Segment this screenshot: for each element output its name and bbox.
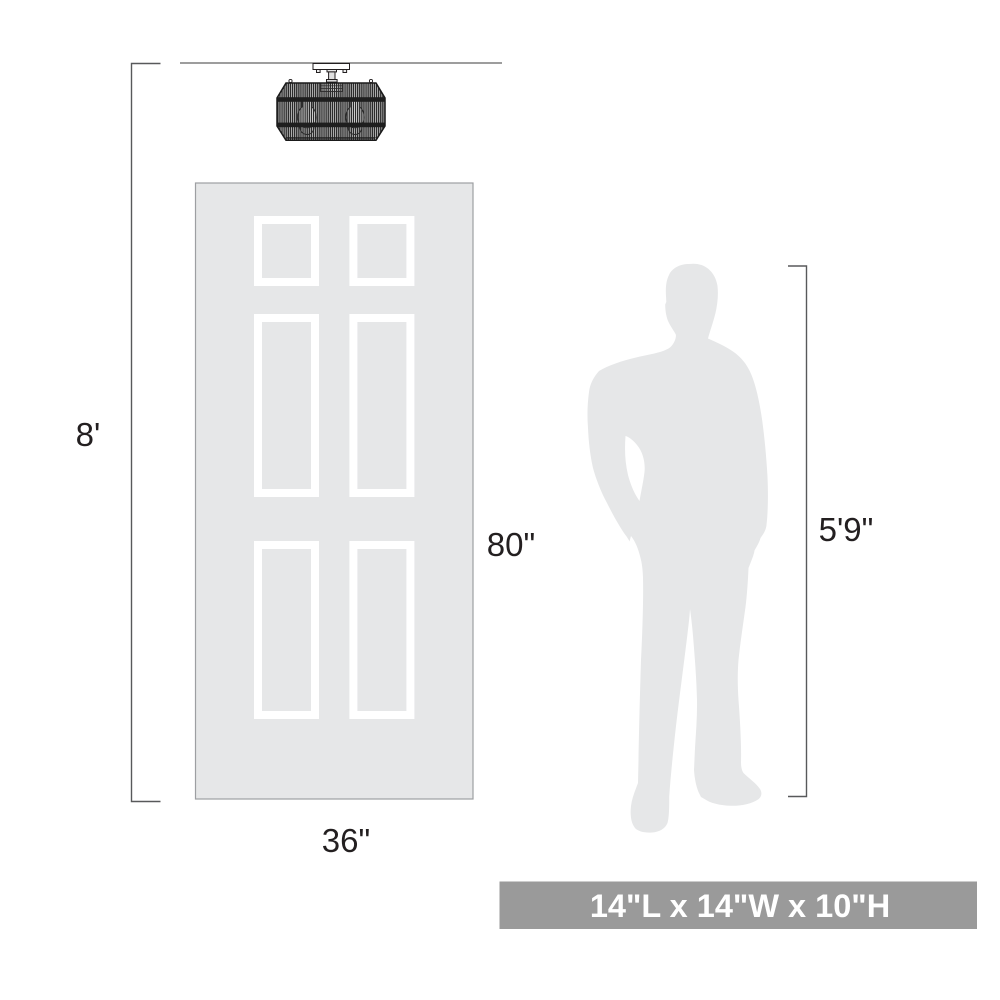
- svg-text:36": 36": [322, 822, 370, 859]
- svg-text:80": 80": [487, 526, 535, 563]
- svg-text:8': 8': [76, 416, 101, 453]
- svg-text:14"L x 14"W x 10"H: 14"L x 14"W x 10"H: [590, 888, 890, 924]
- svg-text:5'9": 5'9": [819, 511, 874, 548]
